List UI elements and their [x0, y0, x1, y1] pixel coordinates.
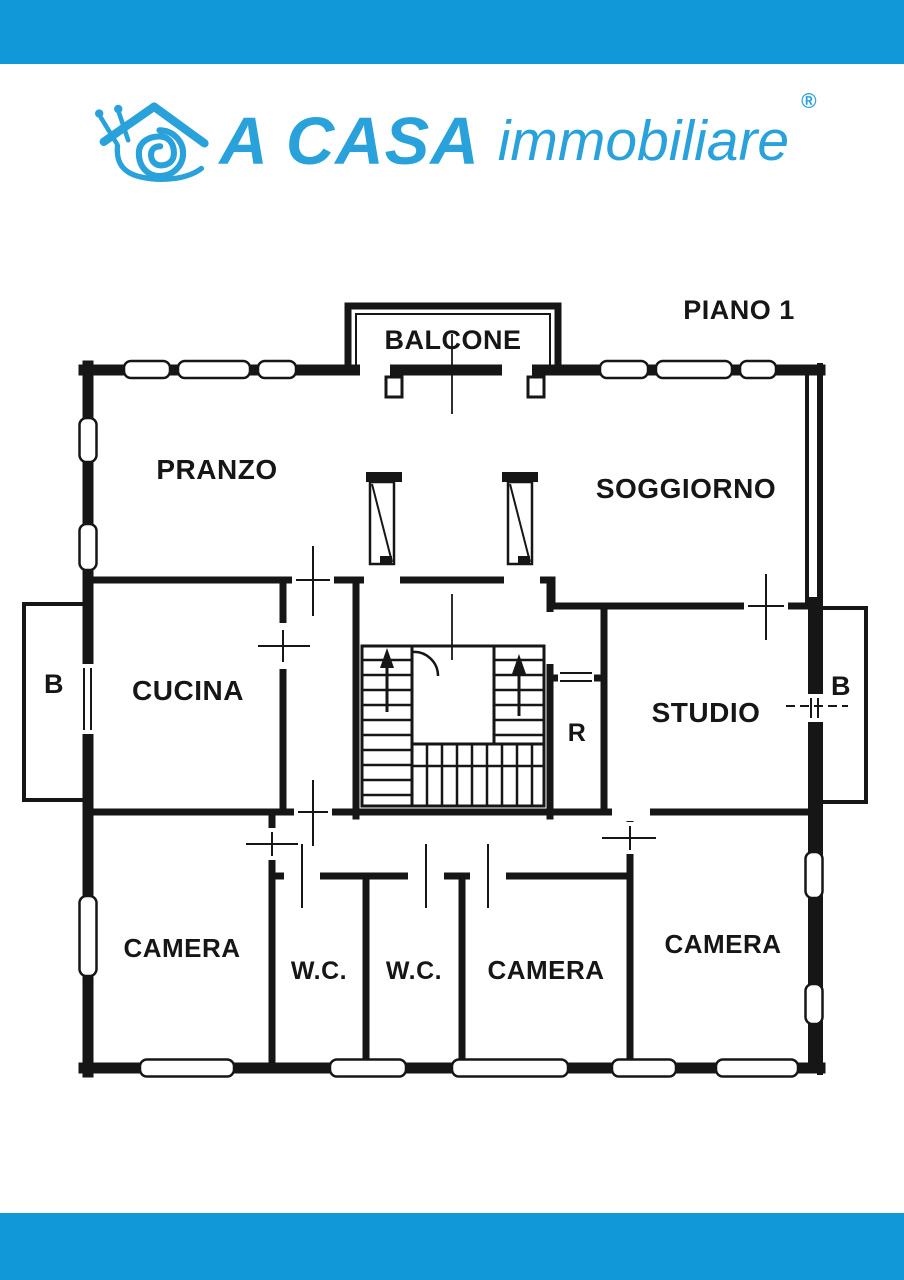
room-label-camera-right: CAMERA — [664, 929, 781, 959]
door-mark — [298, 780, 328, 846]
window — [140, 1060, 234, 1077]
window — [80, 896, 97, 976]
handrail-curve — [412, 652, 438, 676]
room-label-camera-left: CAMERA — [123, 933, 240, 963]
door-leaf-hinge — [366, 472, 402, 482]
french-door-tab — [528, 377, 544, 397]
window — [80, 524, 97, 570]
door-gap-stair-right — [504, 571, 540, 589]
door-mark — [246, 832, 298, 856]
window — [178, 361, 250, 378]
door-leaf-foot — [380, 556, 392, 565]
door-leaf-foot — [518, 556, 530, 565]
room-labels: PIANO 1 BALCONE PRANZO SOGGIORNO CUCINA … — [44, 295, 851, 985]
door-mark — [748, 574, 784, 640]
door-gap-studio — [612, 803, 650, 821]
door-leaf-diagonal — [510, 484, 530, 562]
door-gap-stair-left — [364, 571, 400, 589]
window — [330, 1060, 406, 1077]
room-label-ripostiglio: R — [568, 719, 587, 747]
room-label-soggiorno: SOGGIORNO — [596, 473, 776, 504]
staircase — [362, 646, 544, 806]
room-label-studio: STUDIO — [652, 697, 761, 728]
stair-treads-bottom — [427, 744, 532, 806]
window — [656, 361, 732, 378]
stair-arrow-head — [512, 654, 526, 674]
stair-arrow-head — [380, 648, 394, 668]
room-label-wc-right: W.C. — [386, 957, 442, 985]
door-gap-balcony-right — [806, 694, 826, 722]
room-label-balcone: BALCONE — [385, 325, 522, 355]
balcony-left-wall — [24, 604, 88, 800]
window — [124, 361, 170, 378]
window — [716, 1060, 798, 1077]
bottom-blue-bar — [0, 1213, 904, 1280]
flyer-page: A CASA immobiliare ® — [0, 0, 904, 1280]
room-label-cucina: CUCINA — [132, 675, 244, 706]
window — [600, 361, 648, 378]
french-door-tab — [386, 377, 402, 397]
door-gap-ripostiglio — [558, 669, 594, 687]
room-label-camera-center: CAMERA — [487, 955, 604, 985]
room-label-balcony-left: B — [44, 669, 64, 699]
door-leaf-diagonal — [372, 484, 392, 562]
window — [258, 361, 296, 378]
room-label-wc-left: W.C. — [291, 957, 347, 985]
floor-plan: PIANO 1 BALCONE PRANZO SOGGIORNO CUCINA … — [0, 0, 904, 1280]
window — [612, 1060, 676, 1077]
door-leaves — [366, 472, 538, 565]
room-label-pranzo: PRANZO — [156, 454, 277, 485]
door-leaf-hinge — [502, 472, 538, 482]
door-mark — [258, 630, 310, 662]
window — [80, 418, 97, 462]
door-marks — [84, 334, 848, 908]
door-mark — [602, 826, 656, 850]
door-gap-balcony-left — [79, 664, 97, 734]
window — [806, 852, 823, 898]
room-label-balcony-right: B — [831, 671, 851, 701]
window — [740, 361, 776, 378]
window — [806, 984, 823, 1024]
door-mark — [296, 546, 330, 616]
floor-label: PIANO 1 — [683, 295, 795, 325]
window — [452, 1060, 568, 1077]
